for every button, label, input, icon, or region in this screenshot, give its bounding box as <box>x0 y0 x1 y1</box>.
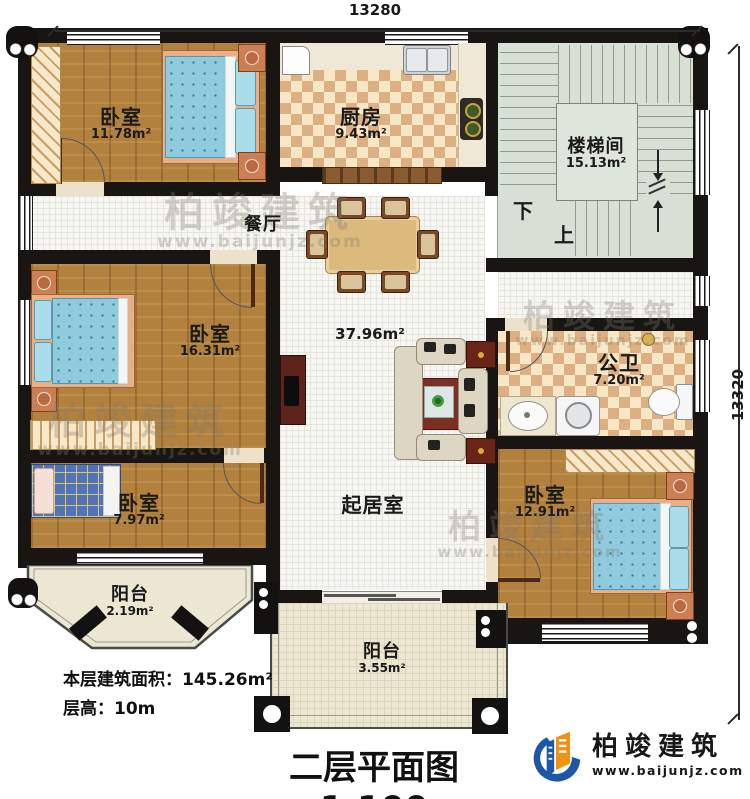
sink-drain <box>524 412 530 418</box>
brand-name: 柏竣建筑 <box>592 734 744 760</box>
pillow <box>669 506 689 548</box>
dining-chair <box>337 197 366 219</box>
nightstand <box>31 270 57 296</box>
room-label-stairwell: 楼梯间 15.13m² <box>556 137 636 172</box>
toilet-bowl <box>648 388 680 416</box>
dining-chair <box>337 271 366 293</box>
stove-burner <box>465 121 481 137</box>
dining-chair <box>417 230 439 259</box>
sofa-cushion <box>424 342 436 352</box>
room-area: 2.19m² <box>95 605 165 618</box>
corner-ornament <box>8 578 38 608</box>
sofa-loveseat <box>416 434 466 461</box>
side-table <box>466 438 496 464</box>
sink-bowl <box>427 48 448 72</box>
stair-arrow-line <box>657 208 659 232</box>
room-name: 楼梯间 <box>556 137 636 157</box>
room-name: 餐厅 <box>233 215 293 235</box>
ceiling-lamp <box>642 333 655 346</box>
room-area: 7.97m² <box>99 514 179 529</box>
door-opening <box>210 250 257 264</box>
room-name: 起居室 <box>333 494 413 516</box>
stair-arrow-line <box>657 150 659 174</box>
post-ornament <box>259 588 268 597</box>
wall <box>442 590 488 603</box>
room-area: 3.55m² <box>347 662 417 675</box>
sofa-cushion <box>464 404 475 417</box>
wall <box>440 167 498 182</box>
door-opening <box>56 182 104 196</box>
room-area: 37.96m² <box>330 326 410 343</box>
kitchen-pass-counter <box>322 167 442 184</box>
post-ornament <box>481 616 490 625</box>
nightstand <box>31 386 57 412</box>
floor-height-text: 层高：10m <box>63 694 155 719</box>
post-ornament <box>481 707 499 725</box>
stair-flight-bottom <box>575 198 635 256</box>
nightstand <box>238 44 266 72</box>
sofa-cushion <box>464 378 475 391</box>
room-name: 厨房 <box>321 106 401 128</box>
washing-machine-door <box>565 402 592 429</box>
dining-chair <box>381 197 410 219</box>
bed-sheet-fold <box>118 298 128 384</box>
window <box>693 276 710 306</box>
room-name: 公卫 <box>579 352 659 374</box>
brand-text-block: 柏竣建筑 www.baijunjz.com <box>592 734 744 778</box>
nightstand <box>666 592 694 620</box>
stair-flight-left <box>500 52 558 195</box>
room-name: 阳台 <box>95 585 165 605</box>
fridge <box>282 46 310 75</box>
plan-title: 二层平面图1:100 <box>252 740 496 799</box>
room-label-bedroom-br: 卧室 12.91m² <box>505 484 585 521</box>
room-name: 卧室 <box>170 323 250 345</box>
brand-logo: 柏竣建筑 www.baijunjz.com <box>528 728 744 784</box>
dimension-tick <box>727 713 738 724</box>
room-name: 卧室 <box>505 484 585 506</box>
wardrobe <box>31 46 61 184</box>
wall <box>486 258 708 272</box>
room-label-balcony-left: 阳台 2.19m² <box>95 585 165 619</box>
corridor-floor <box>498 272 693 318</box>
pillow <box>34 342 52 382</box>
pillow <box>34 468 54 514</box>
sink-bowl <box>406 48 427 72</box>
brand-logo-icon <box>528 728 584 784</box>
room-label-kitchen: 厨房 9.43m² <box>321 106 401 143</box>
stair-arrow-up <box>653 200 663 208</box>
window <box>77 551 203 565</box>
sliding-door-leaf <box>368 598 440 601</box>
nightstand <box>666 472 694 500</box>
floor-plan-canvas: 柏竣建筑 www.baijunjz.com 柏竣建筑 www.baijunjz.… <box>0 0 750 799</box>
room-label-balcony-bottom: 阳台 3.55m² <box>347 642 417 676</box>
room-area: 11.78m² <box>81 128 161 143</box>
post-ornament <box>259 600 268 609</box>
pillow <box>235 108 256 154</box>
sofa-cushion <box>428 440 440 450</box>
room-name: 卧室 <box>81 106 161 128</box>
dining-chair <box>381 271 410 293</box>
tv <box>284 376 299 406</box>
side-table <box>466 341 496 368</box>
wall <box>266 43 280 196</box>
room-label-bedroom-tl: 卧室 11.78m² <box>81 106 161 143</box>
window <box>693 110 710 195</box>
wardrobe <box>565 449 695 473</box>
stove-burner <box>465 103 481 119</box>
dining-table <box>325 216 420 274</box>
plant <box>432 395 444 407</box>
door-opening <box>224 448 264 463</box>
living-area-value: 37.96m² <box>330 326 410 343</box>
stair-flight-top <box>558 45 693 103</box>
post-ornament <box>687 633 697 643</box>
room-area: 16.31m² <box>170 345 250 360</box>
stair-down-label: 下 <box>513 195 533 224</box>
bed-mattress <box>165 56 227 158</box>
pillow <box>34 300 52 340</box>
window <box>542 622 648 642</box>
dining-chair <box>306 230 328 259</box>
room-area: 12.91m² <box>505 506 585 521</box>
door-opening <box>486 538 498 582</box>
room-area: 7.20m² <box>579 374 659 389</box>
wall <box>280 167 322 182</box>
wardrobe <box>30 420 156 450</box>
dimension-right: 13320 <box>729 363 747 427</box>
room-label-bathroom: 公卫 7.20m² <box>579 352 659 389</box>
nightstand <box>238 152 266 180</box>
room-area: 15.13m² <box>556 157 636 172</box>
window <box>18 196 33 250</box>
balcony-post <box>476 610 506 648</box>
room-name: 卧室 <box>99 492 179 514</box>
door-opening <box>505 318 547 331</box>
pillow <box>669 548 689 590</box>
stair-arrow-down <box>653 173 663 181</box>
wall <box>266 250 280 448</box>
dimension-line-top <box>55 30 700 32</box>
room-name: 阳台 <box>347 642 417 662</box>
room-area: 9.43m² <box>321 128 401 143</box>
room-label-living: 起居室 <box>333 494 413 516</box>
post-ornament <box>481 628 490 637</box>
sofa-cushion <box>444 344 456 354</box>
sliding-door-leaf <box>324 594 396 597</box>
room-label-dining: 餐厅 <box>233 215 293 235</box>
dimension-tick <box>727 43 738 54</box>
corner-ornament <box>6 26 38 58</box>
post-ornament <box>687 621 697 631</box>
brand-url: www.baijunjz.com <box>592 763 744 778</box>
window <box>693 340 710 412</box>
stair-up-label: 上 <box>554 219 574 248</box>
room-label-bedroom-ml: 卧室 16.31m² <box>170 323 250 360</box>
dimension-top: 13280 <box>340 1 410 19</box>
wall <box>486 436 708 449</box>
post-ornament <box>263 705 281 723</box>
bed-mattress <box>52 298 126 384</box>
room-label-bedroom-bl: 卧室 7.97m² <box>99 492 179 529</box>
floor-area-text: 本层建筑面积：145.26m² <box>63 665 273 690</box>
bed-mattress <box>593 503 665 590</box>
